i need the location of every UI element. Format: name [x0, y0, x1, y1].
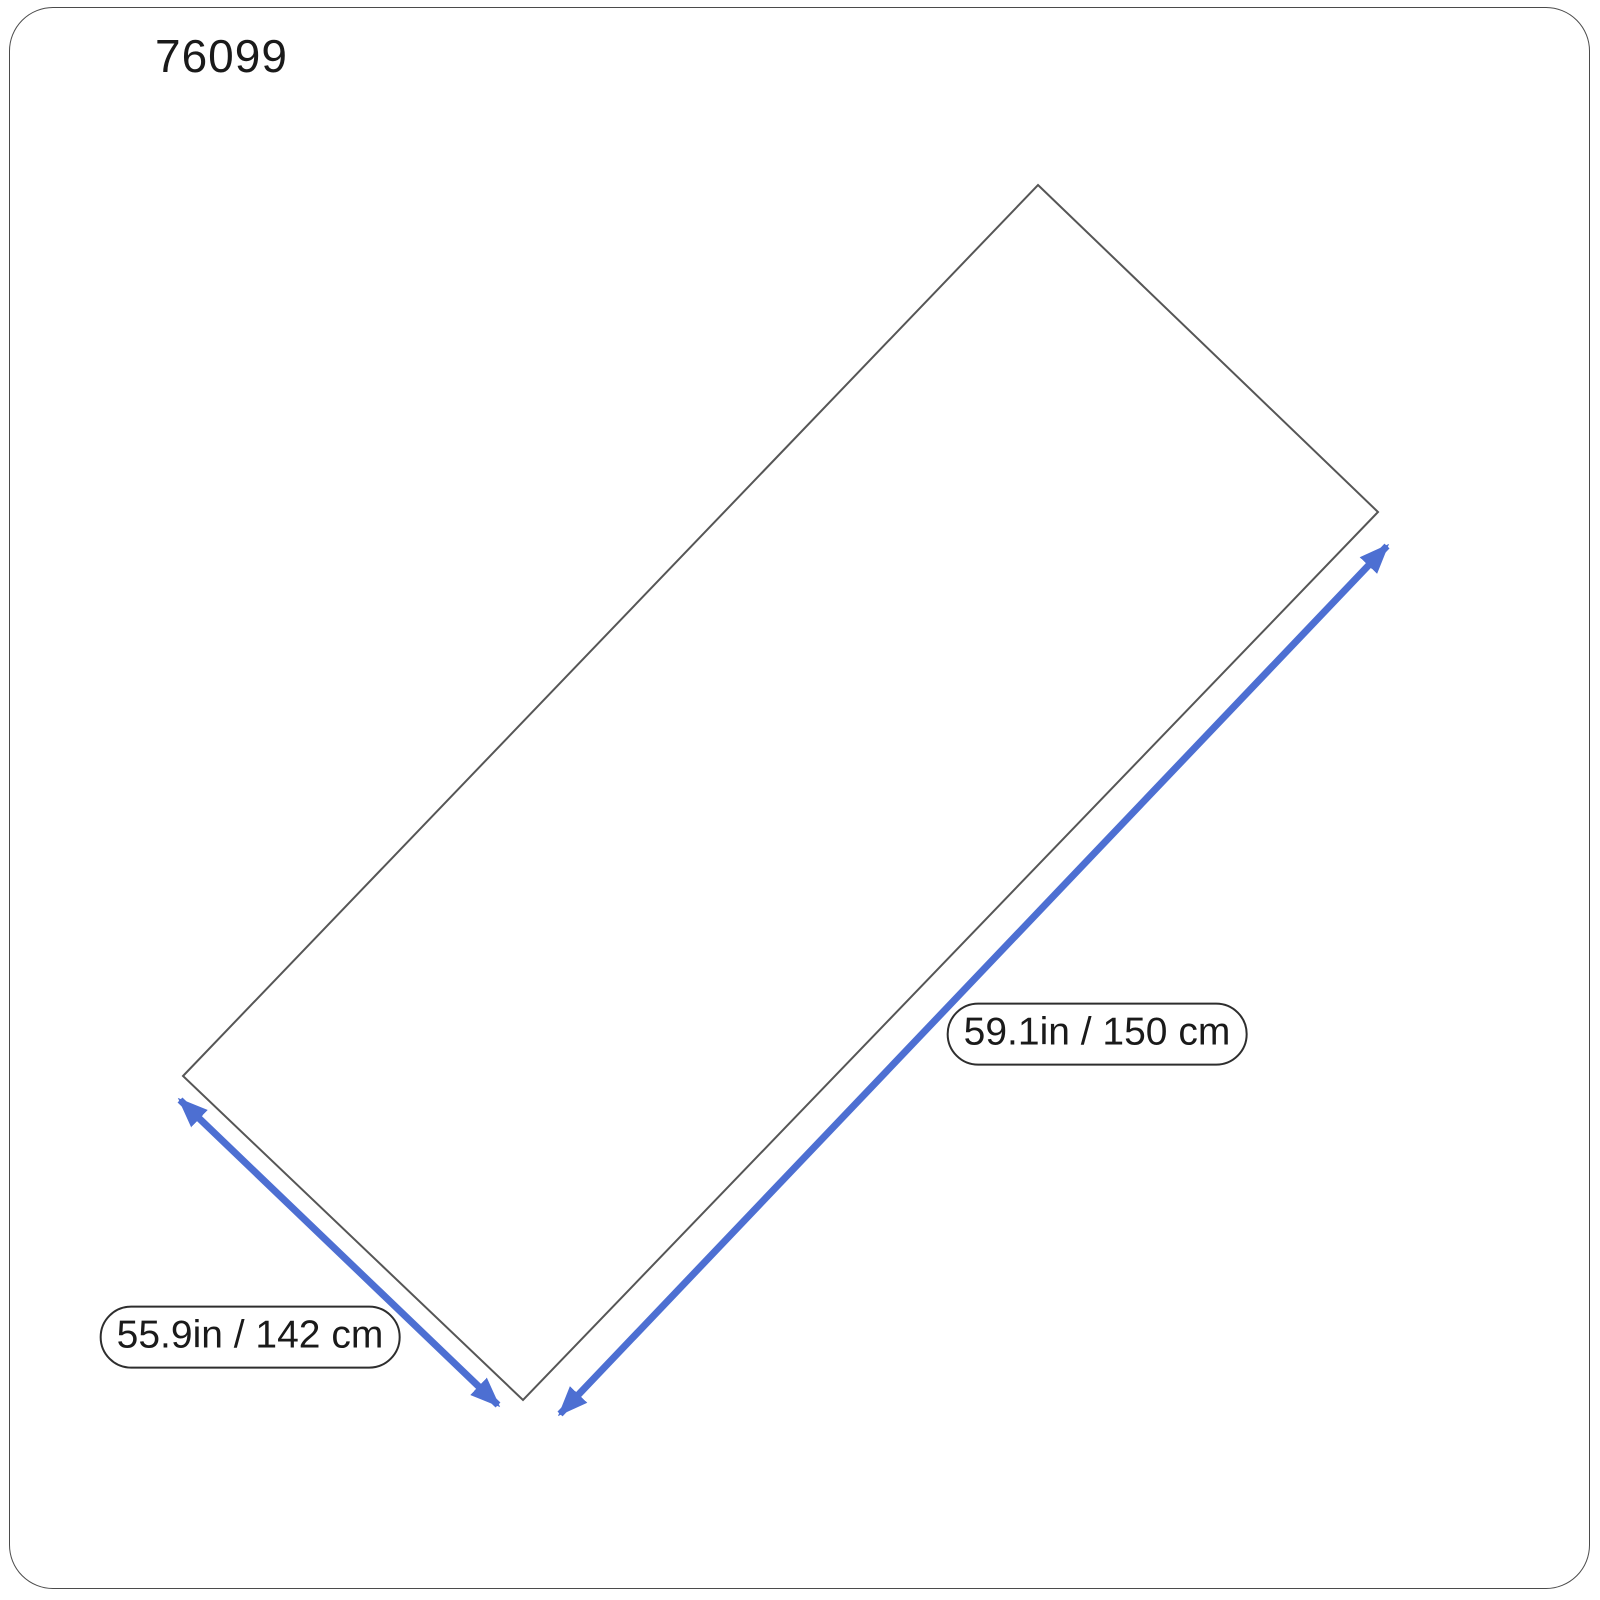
item-outline	[183, 185, 1378, 1400]
long-side-dimension-arrow	[560, 546, 1387, 1414]
product-dimension-diagram: 76099 59.1in / 150 cm 55.9in / 142 cm	[0, 0, 1600, 1600]
short-side-dimension-label: 55.9in / 142 cm	[100, 1306, 401, 1369]
long-side-dimension-label: 59.1in / 150 cm	[947, 1003, 1248, 1066]
